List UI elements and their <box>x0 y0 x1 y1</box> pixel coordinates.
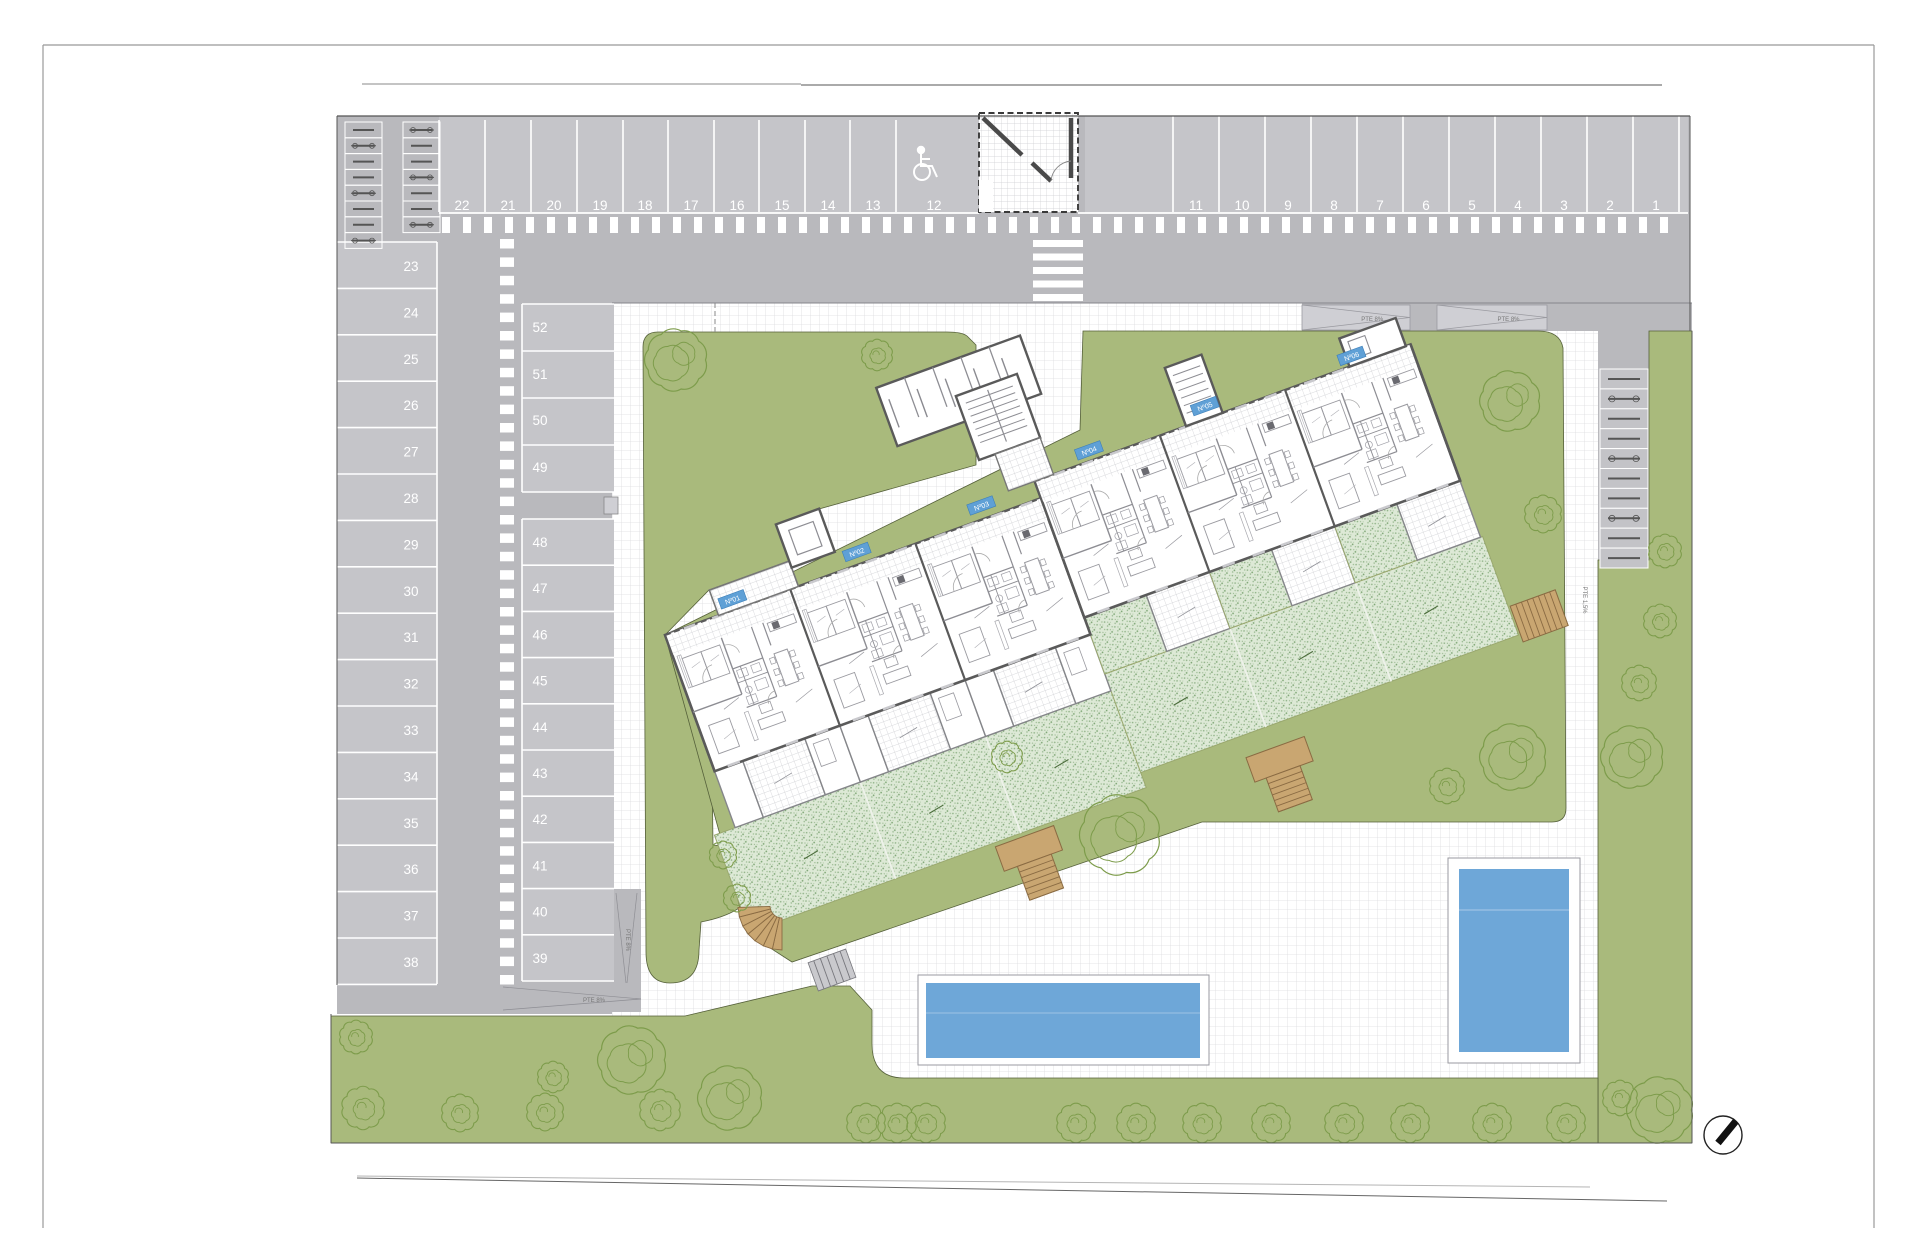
svg-text:23: 23 <box>403 259 418 274</box>
svg-text:19: 19 <box>592 198 607 213</box>
svg-text:27: 27 <box>403 445 418 460</box>
svg-text:47: 47 <box>532 581 547 596</box>
svg-text:22: 22 <box>454 198 469 213</box>
svg-text:38: 38 <box>403 955 418 970</box>
svg-text:31: 31 <box>403 630 418 645</box>
svg-text:6: 6 <box>1422 198 1430 213</box>
svg-text:34: 34 <box>403 769 419 784</box>
svg-text:43: 43 <box>532 766 547 781</box>
svg-text:46: 46 <box>532 627 547 642</box>
svg-text:48: 48 <box>532 535 547 550</box>
svg-text:29: 29 <box>403 537 418 552</box>
svg-text:PTE 8%: PTE 8% <box>583 998 606 1004</box>
svg-text:26: 26 <box>403 398 418 413</box>
svg-text:33: 33 <box>403 723 418 738</box>
svg-text:4: 4 <box>1514 198 1522 213</box>
svg-text:5: 5 <box>1468 198 1476 213</box>
svg-text:9: 9 <box>1284 198 1292 213</box>
svg-text:1: 1 <box>1652 198 1660 213</box>
svg-text:32: 32 <box>403 677 418 692</box>
svg-text:41: 41 <box>532 858 547 873</box>
svg-text:17: 17 <box>683 198 698 213</box>
svg-text:PTE 8%: PTE 8% <box>1497 317 1520 323</box>
svg-text:12: 12 <box>926 198 941 213</box>
svg-text:3: 3 <box>1560 198 1568 213</box>
svg-text:8: 8 <box>1330 198 1338 213</box>
svg-text:13: 13 <box>865 198 880 213</box>
svg-text:PTE 1,5%: PTE 1,5% <box>1581 586 1587 614</box>
svg-text:14: 14 <box>820 198 836 213</box>
svg-text:18: 18 <box>637 198 652 213</box>
svg-text:20: 20 <box>546 198 561 213</box>
svg-text:30: 30 <box>403 584 418 599</box>
svg-text:37: 37 <box>403 909 418 924</box>
svg-text:42: 42 <box>532 812 547 827</box>
svg-text:25: 25 <box>403 352 418 367</box>
svg-text:16: 16 <box>729 198 744 213</box>
svg-text:28: 28 <box>403 491 418 506</box>
svg-text:44: 44 <box>532 720 548 735</box>
svg-text:45: 45 <box>532 674 547 689</box>
svg-text:7: 7 <box>1376 198 1384 213</box>
svg-text:24: 24 <box>403 305 419 320</box>
svg-text:52: 52 <box>532 320 547 335</box>
svg-text:10: 10 <box>1234 198 1249 213</box>
svg-text:51: 51 <box>532 367 547 382</box>
svg-text:40: 40 <box>532 905 547 920</box>
svg-text:PTE 8%: PTE 8% <box>624 929 630 952</box>
svg-text:49: 49 <box>532 460 547 475</box>
svg-text:15: 15 <box>774 198 789 213</box>
svg-text:50: 50 <box>532 413 547 428</box>
svg-text:2: 2 <box>1606 198 1614 213</box>
svg-text:36: 36 <box>403 862 418 877</box>
svg-text:35: 35 <box>403 816 418 831</box>
svg-text:21: 21 <box>500 198 515 213</box>
svg-text:39: 39 <box>532 951 547 966</box>
svg-text:11: 11 <box>1189 198 1203 213</box>
